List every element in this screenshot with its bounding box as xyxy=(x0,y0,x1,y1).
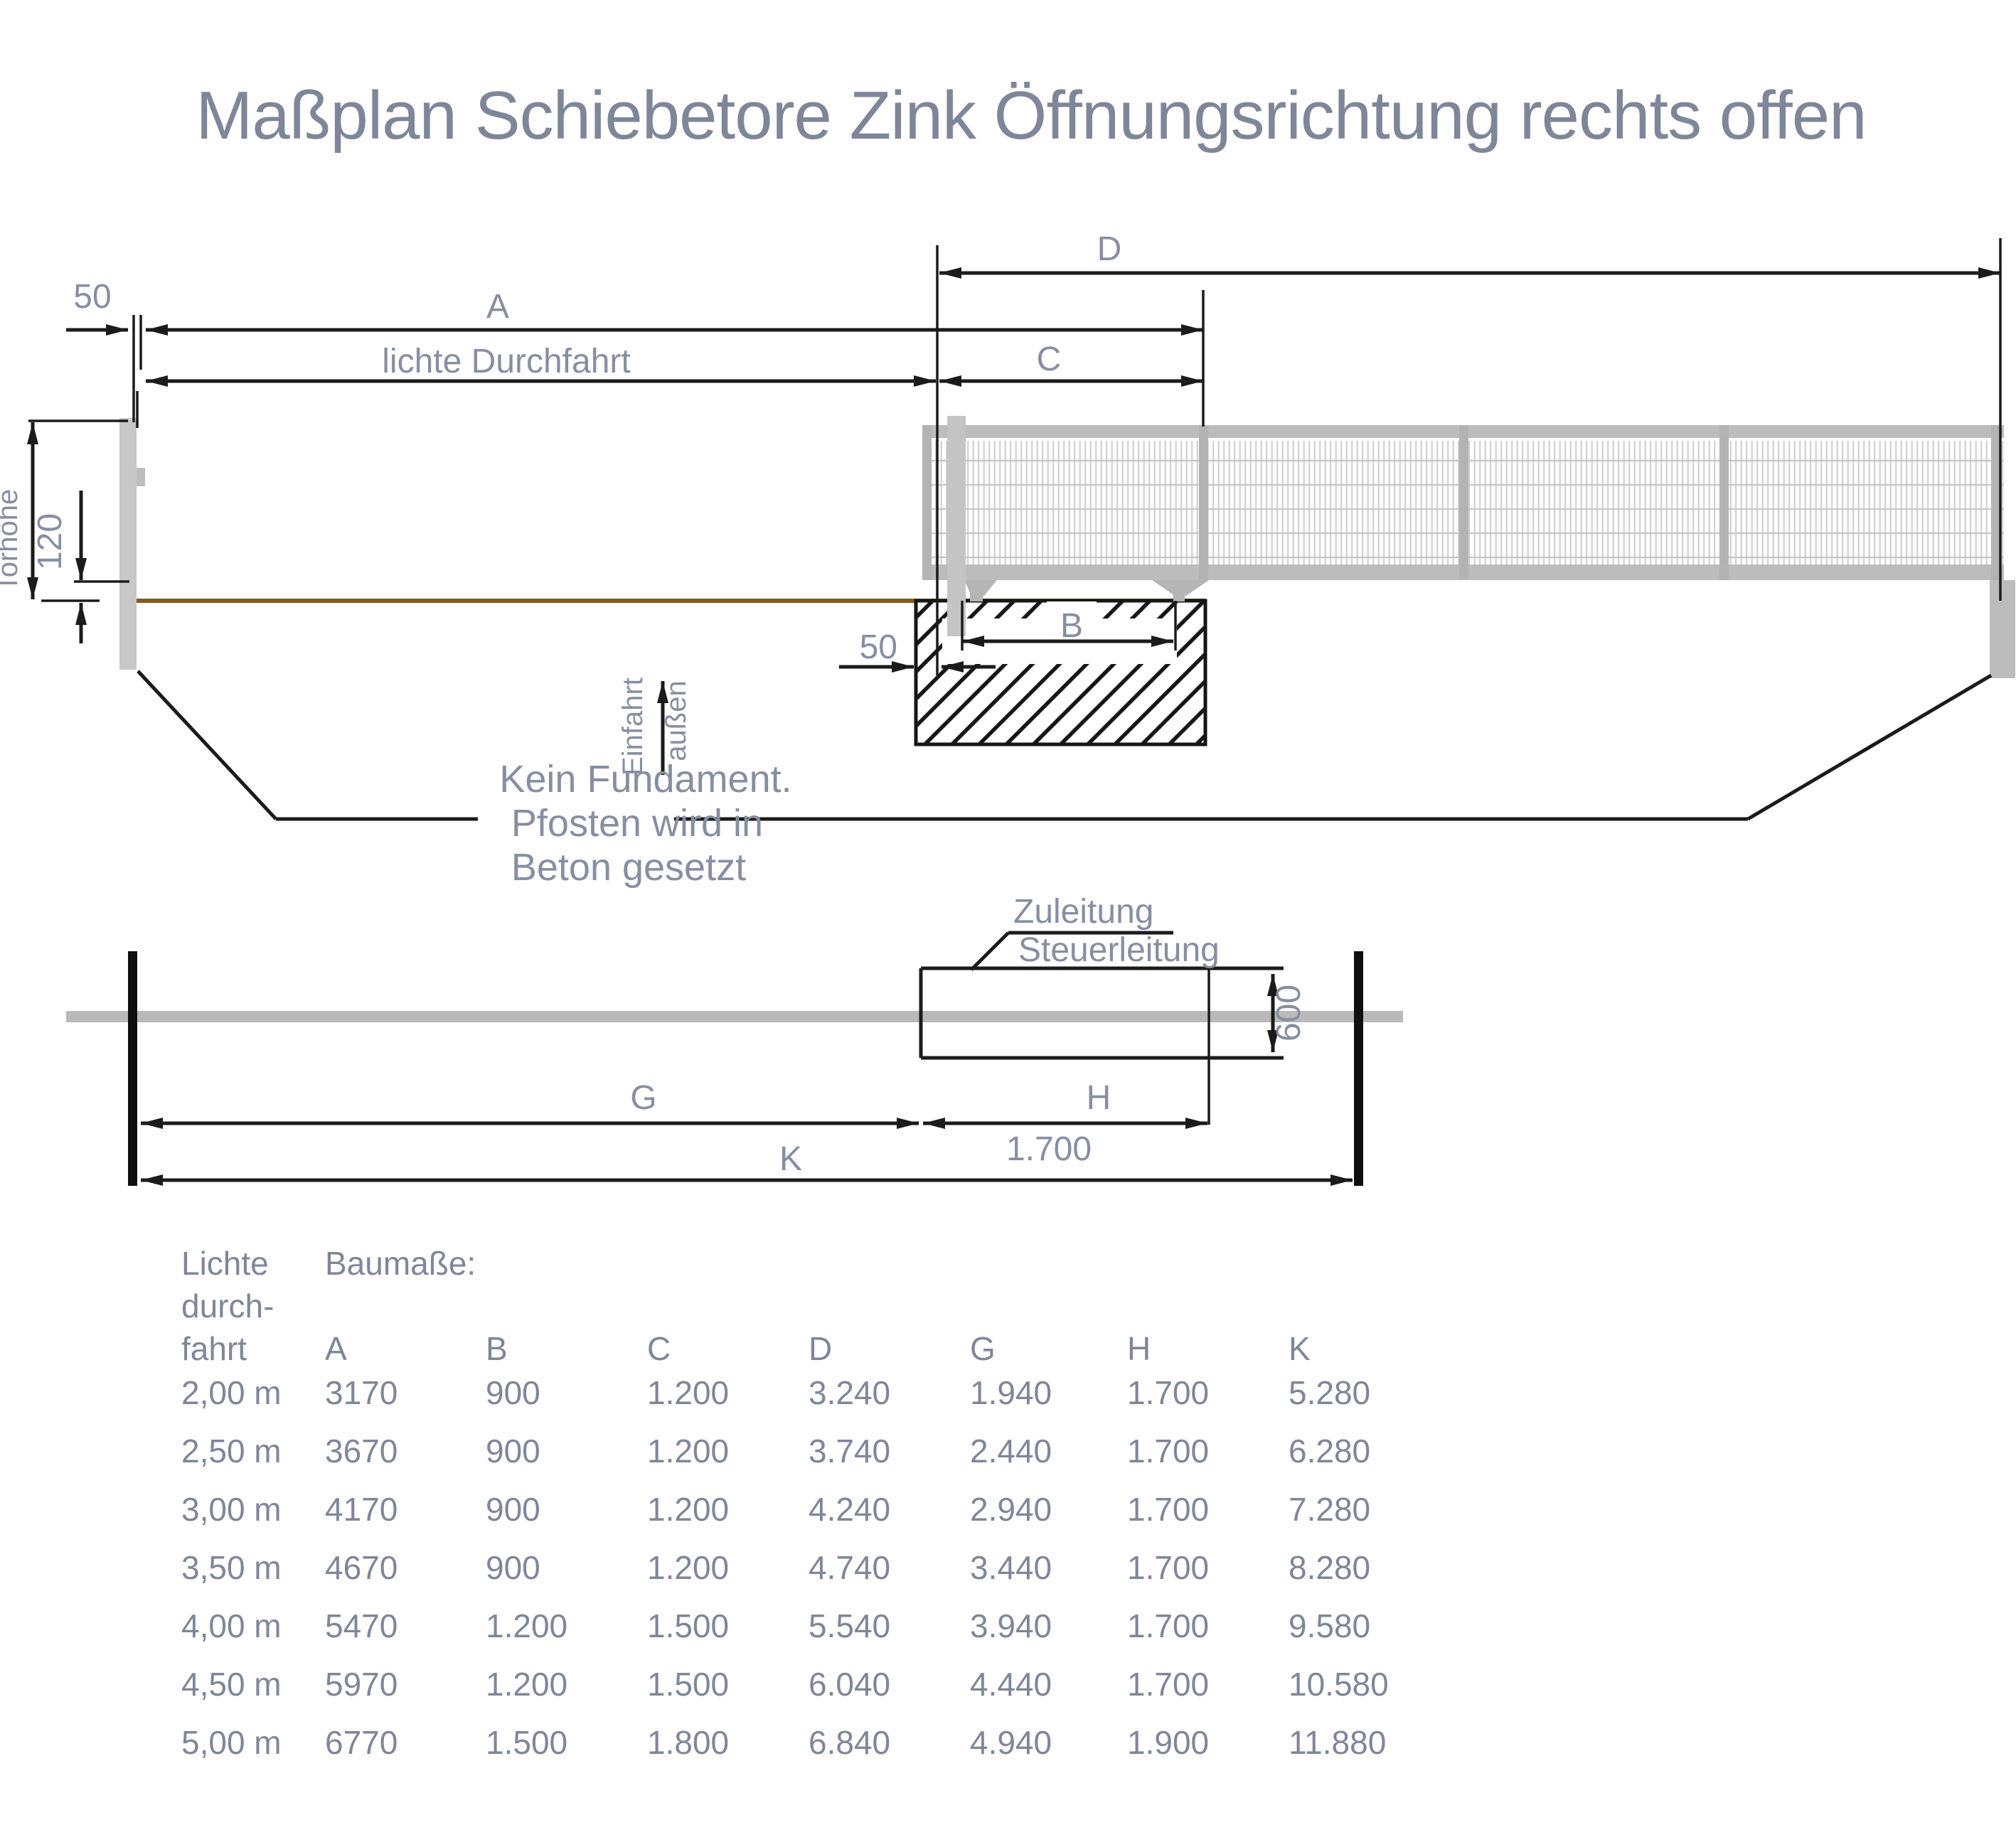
table-cell: 3.240 xyxy=(809,1374,890,1411)
gate-guide-bracket xyxy=(1990,580,2015,678)
table-col-k: K xyxy=(1289,1330,1311,1367)
gate-frame-mid1 xyxy=(1199,425,1208,580)
table-cell: 900 xyxy=(486,1491,540,1528)
dimension-table: Lichte Baumaße: durch- fahrt A B C D G H… xyxy=(181,1245,1389,1761)
plan-left-post xyxy=(128,951,137,1186)
table-rows: 2,00 m31709001.2003.2401.9401.7005.2802,… xyxy=(181,1374,1389,1761)
table-cell: 1.200 xyxy=(647,1374,729,1411)
table-cell: 1.900 xyxy=(1127,1724,1209,1761)
table-cell: 8.280 xyxy=(1289,1549,1370,1586)
table-cell: 1.800 xyxy=(647,1724,729,1761)
table-cell: 1.200 xyxy=(647,1433,729,1469)
table-cell: 1.500 xyxy=(647,1666,729,1703)
dim-label-torhoehe: Torhöhe xyxy=(0,489,23,592)
table-cell: 1.200 xyxy=(647,1491,729,1528)
masplan-drawing-page: Maßplan Schiebetore Zink Öffnungsrichtun… xyxy=(0,0,2016,1847)
table-cell: 1.200 xyxy=(486,1607,567,1644)
table-cell: 4670 xyxy=(325,1549,398,1586)
dim-label-b: B xyxy=(1060,607,1083,645)
table-row-label: 5,00 m xyxy=(181,1724,282,1761)
table-cell: 5.280 xyxy=(1289,1374,1370,1411)
gate-frame-left xyxy=(922,425,932,580)
table-cell: 6.280 xyxy=(1289,1433,1370,1469)
table-cell: 1.700 xyxy=(1127,1433,1209,1469)
dim-label-120: 120 xyxy=(31,513,69,570)
table-col-a: A xyxy=(325,1330,347,1367)
elevation-view: 50 A lichte Durchfahrt D C B 50 Torhöhe … xyxy=(0,230,2015,889)
dim-label-50-foundation: 50 xyxy=(860,628,897,666)
dim-label-a: A xyxy=(486,288,509,326)
table-cell: 11.880 xyxy=(1289,1724,1386,1761)
dim-label-50-post: 50 xyxy=(73,278,111,316)
gate-foot-mid-leg xyxy=(1173,593,1185,601)
left-post xyxy=(119,418,137,670)
table-cell: 7.280 xyxy=(1289,1491,1370,1528)
page-title: Maßplan Schiebetore Zink Öffnungsrichtun… xyxy=(196,77,1866,154)
dim-label-k: K xyxy=(779,1140,802,1178)
table-cell: 4.740 xyxy=(809,1549,890,1586)
table-cell: 3670 xyxy=(325,1433,398,1469)
dim-label-1700: 1.700 xyxy=(1006,1130,1092,1168)
table-cell: 1.700 xyxy=(1127,1549,1209,1586)
table-cell: 2.440 xyxy=(970,1433,1052,1469)
table-cell: 1.700 xyxy=(1127,1374,1209,1411)
dim-label-g: G xyxy=(630,1079,656,1117)
note-line-1: Kein Fundament. xyxy=(499,758,791,801)
table-cell: 1.940 xyxy=(970,1374,1052,1411)
table-row-label: 3,00 m xyxy=(181,1491,282,1528)
gate-frame-mid2 xyxy=(1459,425,1468,580)
table-row-label: 3,50 m xyxy=(181,1549,282,1586)
table-col-c: C xyxy=(647,1330,671,1367)
table-cell: 5970 xyxy=(325,1666,398,1703)
table-row-label: 2,00 m xyxy=(181,1374,282,1411)
table-cell: 5.540 xyxy=(809,1607,890,1644)
table-cell: 1.500 xyxy=(486,1724,567,1761)
note-line-2: Pfosten wird in xyxy=(511,802,763,845)
table-cell: 1.200 xyxy=(486,1666,567,1703)
table-cell: 900 xyxy=(486,1433,540,1469)
left-post-latch xyxy=(137,468,145,486)
table-header-lichte: Lichte xyxy=(181,1245,269,1282)
table-header-fahrt: fahrt xyxy=(181,1330,247,1367)
table-cell: 900 xyxy=(486,1549,540,1586)
table-col-b: B xyxy=(486,1330,508,1367)
dim-label-c: C xyxy=(1037,341,1062,378)
table-cell: 6770 xyxy=(325,1724,398,1761)
table-cell: 4.440 xyxy=(970,1666,1052,1703)
table-row-label: 4,50 m xyxy=(181,1666,282,1703)
table-col-d: D xyxy=(809,1330,832,1367)
gate-frame-mid3 xyxy=(1719,425,1729,580)
table-header-baumasse: Baumaße: xyxy=(325,1245,476,1282)
table-row-label: 2,50 m xyxy=(181,1433,282,1469)
direction-label-aussen: außen xyxy=(661,680,692,761)
table-cell: 3170 xyxy=(325,1374,398,1411)
table-cell: 900 xyxy=(486,1374,540,1411)
gate-foot-left-leg xyxy=(970,593,983,601)
table-cell: 6.040 xyxy=(809,1666,890,1703)
dim-label-d: D xyxy=(1097,230,1122,268)
table-cell: 1.500 xyxy=(647,1607,729,1644)
table-cell: 10.580 xyxy=(1289,1666,1389,1703)
table-cell: 3.440 xyxy=(970,1549,1052,1586)
table-cell: 6.840 xyxy=(809,1724,890,1761)
table-cell: 4.940 xyxy=(970,1724,1052,1761)
dim-label-h: H xyxy=(1087,1079,1111,1117)
table-cell: 3.940 xyxy=(970,1607,1052,1644)
note-line-3: Beton gesetzt xyxy=(511,846,746,889)
plan-right-post xyxy=(1354,951,1363,1186)
table-cell: 4170 xyxy=(325,1491,398,1528)
table-cell: 1.200 xyxy=(647,1549,729,1586)
plan-view: Zuleitung Steuerleitung 600 G H 1.700 K xyxy=(66,893,1403,1186)
table-header-durch: durch- xyxy=(181,1287,274,1324)
table-row-label: 4,00 m xyxy=(181,1607,282,1644)
dimension-lines-plan xyxy=(141,974,1353,1180)
table-cell: 1.700 xyxy=(1127,1607,1209,1644)
table-cell: 2.940 xyxy=(970,1491,1052,1528)
dim-label-lichte: lichte Durchfahrt xyxy=(382,343,630,380)
table-col-g: G xyxy=(970,1330,996,1367)
table-cell: 1.700 xyxy=(1127,1666,1209,1703)
table-cell: 9.580 xyxy=(1289,1607,1370,1644)
table-cell: 5470 xyxy=(325,1607,398,1644)
table-cell: 4.240 xyxy=(809,1491,890,1528)
plan-gate-line xyxy=(66,1011,1403,1022)
table-cell: 1.700 xyxy=(1127,1491,1209,1528)
label-steuerleitung: Steuerleitung xyxy=(1018,931,1220,969)
label-zuleitung: Zuleitung xyxy=(1013,893,1153,931)
table-col-h: H xyxy=(1127,1330,1151,1367)
table-cell: 3.740 xyxy=(809,1433,890,1469)
dim-label-600: 600 xyxy=(1270,985,1308,1042)
